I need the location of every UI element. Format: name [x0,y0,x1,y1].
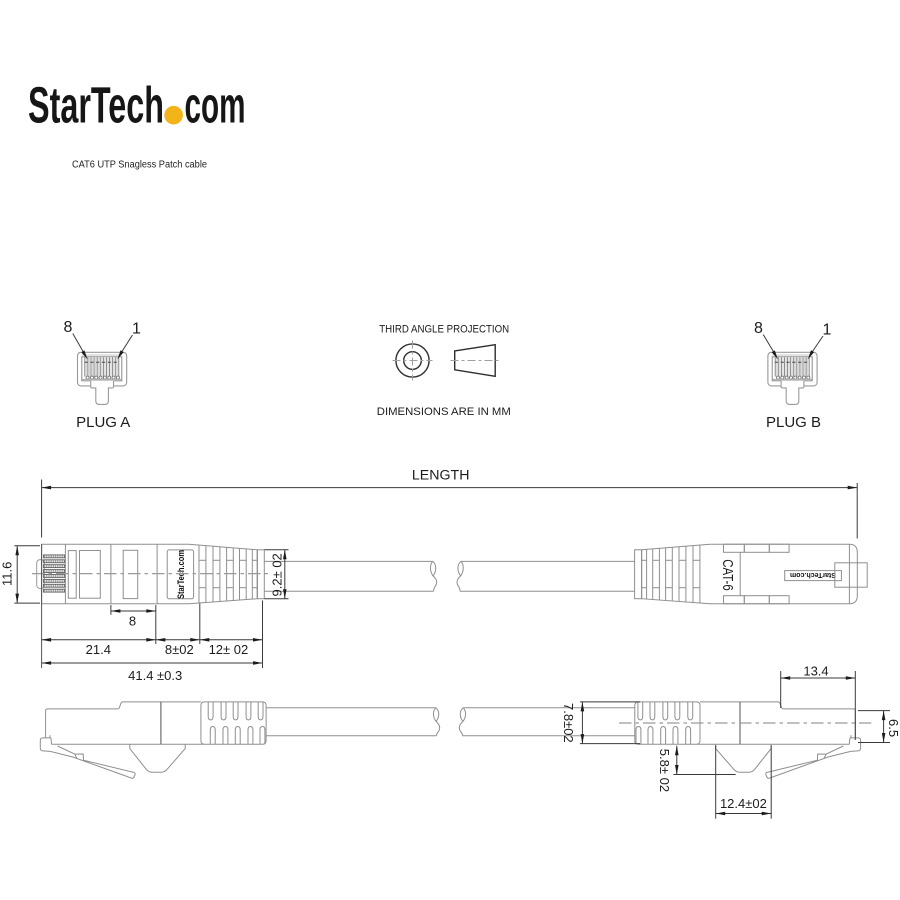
svg-text:LENGTH: LENGTH [412,468,470,484]
svg-text:8: 8 [754,320,763,337]
svg-text:5.8± 02: 5.8± 02 [657,749,672,792]
svg-text:PLUG A: PLUG A [76,414,130,431]
svg-text:21.4: 21.4 [86,642,111,657]
svg-text:DIMENSIONS ARE IN MM: DIMENSIONS ARE IN MM [377,406,511,418]
svg-text:13.4: 13.4 [803,664,828,679]
svg-text:41.4 ±0.3: 41.4 ±0.3 [128,668,182,683]
svg-text:12± 02: 12± 02 [209,642,249,657]
svg-text:StarTech: StarTech [28,77,164,134]
svg-text:9.2± 02: 9.2± 02 [270,553,285,596]
svg-text:CAT6 UTP Snagless Patch cable: CAT6 UTP Snagless Patch cable [72,160,207,171]
svg-text:8±02: 8±02 [165,642,194,657]
svg-text:12.4±02: 12.4±02 [720,796,767,811]
svg-text:6.5: 6.5 [886,719,900,737]
svg-text:8: 8 [129,614,136,629]
svg-text:CAT-6: CAT-6 [719,559,736,591]
svg-text:THIRD ANGLE PROJECTION: THIRD ANGLE PROJECTION [379,324,509,336]
svg-text:1: 1 [823,322,832,339]
svg-text:11.6: 11.6 [0,562,15,586]
svg-text:StarTech.com: StarTech.com [176,550,187,599]
svg-text:7.8±02: 7.8±02 [561,703,576,743]
svg-text:StarTech.com: StarTech.com [790,571,836,580]
svg-text:8: 8 [64,319,73,336]
svg-text:PLUG B: PLUG B [766,414,821,431]
svg-text:1: 1 [132,321,141,338]
svg-text:com: com [185,77,246,134]
